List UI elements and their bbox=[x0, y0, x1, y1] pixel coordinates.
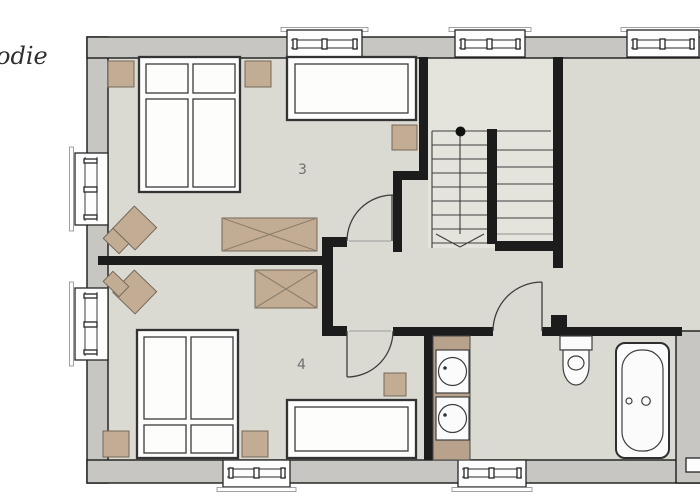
single-bed-mattress bbox=[295, 64, 408, 113]
mattress bbox=[193, 99, 235, 187]
wall-hall-west bbox=[322, 237, 333, 336]
room-4-label: 4 bbox=[297, 357, 306, 373]
bathtub bbox=[616, 343, 669, 458]
window-left-room4 bbox=[70, 282, 109, 366]
wall-room3-stairwell bbox=[419, 57, 428, 179]
nightstand bbox=[245, 61, 271, 87]
window-bottom-2 bbox=[452, 460, 532, 492]
mattress bbox=[191, 337, 233, 419]
pillow bbox=[144, 425, 186, 453]
window-top-1 bbox=[281, 28, 368, 58]
window-bottom-3-partial bbox=[686, 458, 700, 472]
stair-start-dot bbox=[456, 127, 466, 137]
nightstand bbox=[103, 431, 129, 457]
wall-bathroom-north-east bbox=[542, 327, 682, 336]
mattress bbox=[146, 99, 188, 187]
wall-bathroom-west bbox=[424, 336, 433, 460]
exterior-wall-bottom bbox=[87, 460, 700, 483]
window-top-3 bbox=[621, 28, 700, 58]
nightstand bbox=[108, 61, 134, 87]
sink bbox=[436, 350, 469, 393]
single-bed-mattress bbox=[295, 407, 408, 451]
handwritten-note: odie bbox=[0, 42, 48, 70]
wall-stair-south bbox=[495, 241, 563, 251]
wall-stair-middle bbox=[487, 129, 497, 244]
dresser bbox=[255, 270, 317, 308]
window-left-room3 bbox=[70, 147, 109, 231]
dresser bbox=[222, 218, 317, 251]
mattress bbox=[144, 337, 186, 419]
exterior-wall-top bbox=[87, 37, 700, 58]
side-table bbox=[392, 125, 417, 150]
room-3-label: 3 bbox=[298, 162, 307, 178]
pillow bbox=[193, 64, 235, 93]
side-table bbox=[384, 373, 406, 396]
floor-plan-page: 3 4 bbox=[0, 0, 700, 500]
wall-right-room-west bbox=[553, 57, 563, 268]
floor-plan: 3 4 bbox=[0, 0, 700, 500]
window-top-2 bbox=[449, 28, 531, 58]
pillow bbox=[191, 425, 233, 453]
nightstand bbox=[242, 431, 268, 457]
wall-between-rooms bbox=[98, 256, 333, 265]
wall-bathroom-north-west bbox=[393, 327, 493, 336]
sink bbox=[436, 397, 469, 440]
window-bottom-1 bbox=[217, 460, 296, 492]
pillow bbox=[146, 64, 188, 93]
